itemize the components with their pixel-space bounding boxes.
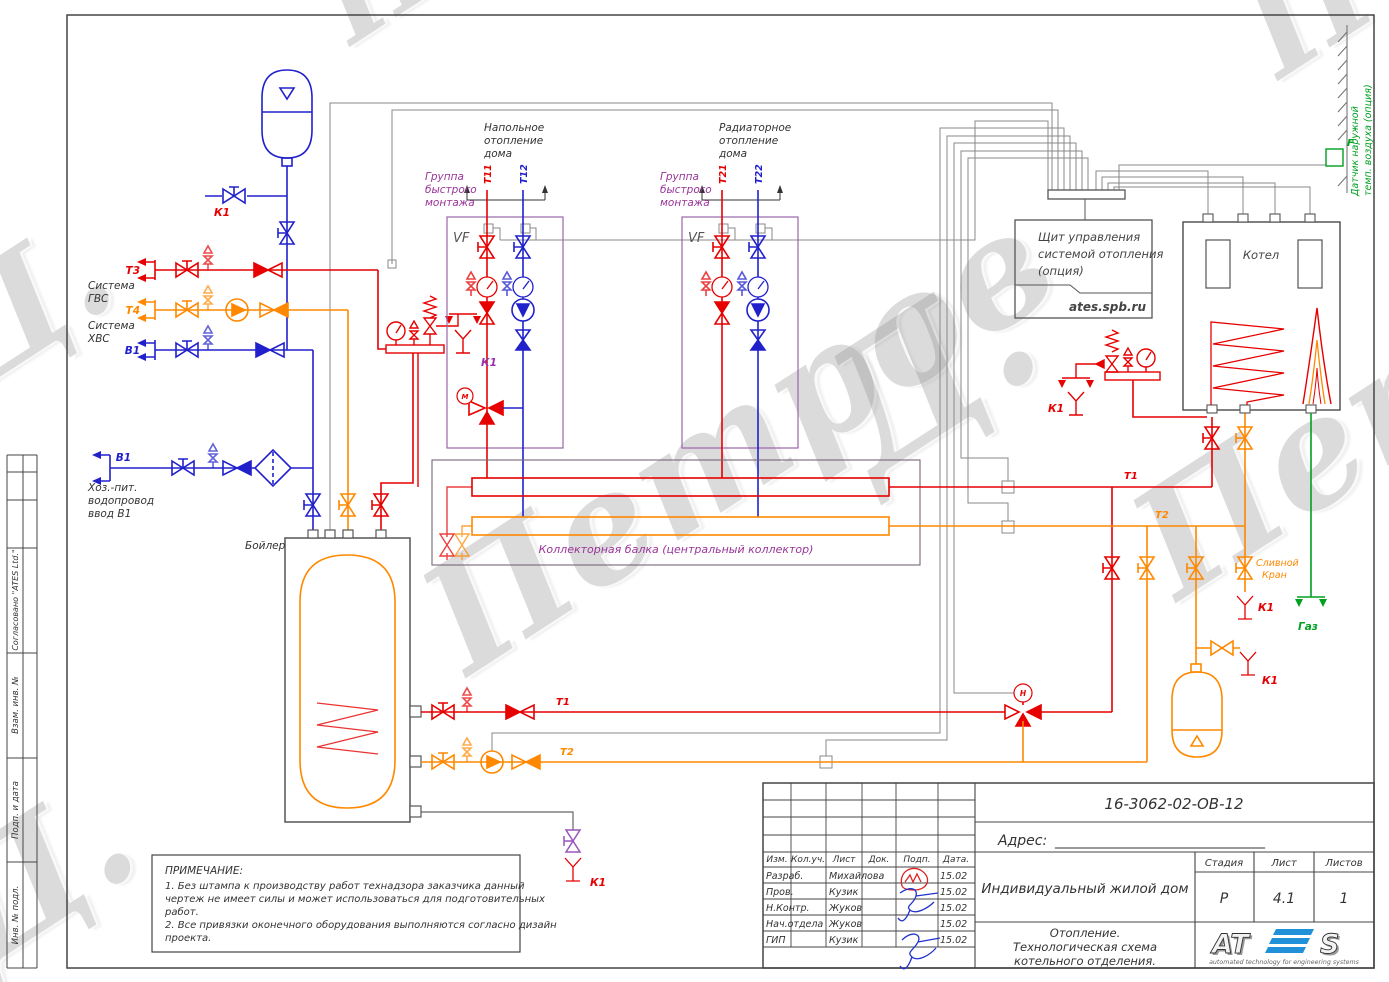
logo-letters-right: S [1320, 929, 1339, 960]
label-grp1: Группа [660, 171, 699, 183]
label-panel1: Щит управления [1038, 230, 1140, 244]
valve-icon [749, 236, 765, 258]
col-izm: Изм. [766, 855, 787, 865]
address-label: Адрес: [997, 833, 1047, 849]
motor-letter: Н [1020, 689, 1027, 698]
valve-icon [172, 459, 194, 475]
valve-icon [1138, 557, 1154, 579]
subtitle3: котельного отделения. [1014, 954, 1156, 968]
valve-icon [713, 236, 729, 258]
air-vent-icon [463, 688, 471, 712]
valve-icon [514, 236, 530, 258]
drain-valve-icon [440, 534, 454, 556]
valve-icon [176, 301, 198, 317]
label-floor2: отопление [484, 135, 543, 147]
row-date: 15.02 [940, 887, 967, 898]
notes-line: чертеж не имеет силы и может использоват… [165, 894, 545, 905]
valve-icon [1203, 427, 1219, 449]
notes-line: 1. Без штампа к производству работ техна… [165, 880, 525, 892]
safety-valve-icon [1106, 330, 1118, 352]
label-k1: К1 [1048, 403, 1064, 415]
sheet-value: 4.1 [1273, 891, 1295, 907]
ates-logo: AT AT S S automated technology for engin… [1209, 929, 1360, 966]
control-wires [330, 103, 1326, 768]
drain-funnel-icon [1237, 596, 1253, 619]
label-rad1: Радиаторное [719, 122, 791, 134]
row-role: Н.Контр. [766, 903, 810, 914]
thermo-gauge-icon [477, 277, 497, 297]
label-t11: Т11 [483, 164, 494, 184]
stage-value: Р [1220, 891, 1229, 907]
label-k1: К1 [590, 877, 606, 889]
label-grp2: быстрого [660, 184, 712, 196]
label-boiler: Бойлер [245, 540, 286, 552]
project-name: Индивидуальный жилой дом [981, 881, 1188, 897]
valve-icon [339, 494, 355, 516]
valve-icon [223, 187, 245, 203]
heat-exchanger-icon [1211, 322, 1284, 405]
air-vent-icon [410, 321, 418, 345]
flame-icon [1303, 308, 1331, 404]
valve-icon [176, 341, 198, 357]
thermo-gauge-icon [748, 277, 768, 297]
valve-icon [432, 703, 454, 719]
label-collector: Коллекторная балка (центральный коллекто… [539, 543, 814, 556]
strip-vzam: Взам. инв. № [11, 676, 21, 734]
air-vent-icon [204, 326, 212, 350]
strip-approved: Согласовано "ATES Ltd." [11, 549, 20, 650]
motor-letter: М [462, 393, 469, 401]
label-floor3: дома [483, 148, 512, 160]
label-intro1: Хоз.-пит. [87, 482, 137, 494]
label-t1: Т1 [1124, 471, 1138, 482]
boiler-drain-line [421, 812, 581, 881]
label-t1: Т1 [556, 697, 570, 708]
strip-inv: Инв. № подл. [11, 886, 21, 945]
pressure-gauge-icon [1137, 349, 1155, 372]
safety-valve-icon [424, 296, 436, 318]
label-b1: В1 [125, 345, 140, 357]
label-k1: К1 [1262, 675, 1278, 687]
air-vent-icon [702, 272, 710, 296]
notes-line: работ. [164, 906, 199, 918]
valve-icon [1103, 557, 1119, 579]
address-line: ______________________________ [1054, 833, 1266, 849]
label-t2: Т2 [1155, 510, 1169, 521]
label-panel2: системой отопления [1038, 247, 1163, 261]
label-t21: Т21 [718, 164, 729, 184]
label-rad2: отопление [719, 135, 778, 147]
sheet-label: Лист [1270, 858, 1298, 869]
col-koluch: Кол.уч. [791, 855, 825, 865]
air-vent-icon [503, 272, 511, 296]
col-data: Дата. [942, 855, 969, 865]
label-sys-hvs2: ХВС [87, 333, 110, 345]
return-collector-bar [472, 517, 889, 535]
drain-funnels-right [1237, 596, 1256, 675]
col-dok: Док. [868, 855, 890, 865]
row-role: Разраб. [766, 871, 803, 882]
stage-label: Стадия [1205, 858, 1243, 869]
return-line-t2 [421, 410, 1252, 773]
air-vent-icon [463, 738, 471, 762]
valve-icon [304, 494, 320, 516]
gas-line [1295, 413, 1327, 607]
boiler-tank [285, 530, 421, 822]
terminal-bar [1048, 190, 1125, 199]
label-b1-intro: В1 [116, 452, 131, 464]
col-list: Лист [832, 855, 857, 865]
valve-icon [478, 236, 494, 258]
drain-funnel-icon [1068, 392, 1084, 415]
sensor-icon [1326, 149, 1343, 166]
air-vent-icon [467, 272, 475, 296]
valve-icon [1187, 557, 1203, 579]
expansion-vessel-icon [262, 70, 312, 158]
logo-letters-left: AT [1210, 929, 1251, 960]
notes-title: ПРИМЕЧАНИЕ: [165, 865, 243, 877]
drain-funnel-icon [455, 330, 471, 353]
label-gas: Газ [1298, 621, 1318, 633]
air-vent-icon [209, 444, 217, 468]
label-floor1: Напольное [484, 122, 544, 134]
dhw-t3-line [137, 246, 413, 530]
row-date: 15.02 [940, 903, 967, 914]
row-date: 15.02 [940, 871, 967, 882]
air-vent-icon [1124, 348, 1132, 372]
valve-icon [1236, 427, 1252, 449]
label-drain2: Кран [1262, 570, 1287, 581]
row-name: Кузик [829, 935, 859, 946]
label-vf: VF [688, 231, 705, 246]
label-panel3: (опция) [1038, 264, 1084, 278]
notes-line: 2. Все привязки оконечного оборудования … [165, 919, 557, 931]
signature-blue [900, 934, 940, 969]
label-t3: Т3 [126, 265, 140, 277]
air-vent-icon [738, 272, 746, 296]
drain-valve-icon [455, 534, 469, 556]
label-k1: К1 [1258, 602, 1274, 614]
drain-valve-icon [1236, 557, 1252, 579]
frame-side-strip: Согласовано "ATES Ltd." Взам. инв. № Под… [7, 455, 37, 968]
valve-icon [176, 261, 198, 277]
signatures [898, 868, 940, 968]
label-t22: Т22 [754, 164, 765, 184]
row-name: Кузик [829, 887, 859, 898]
label-rad3: дома [718, 148, 747, 160]
logo-tagline: automated technology for engineering sys… [1209, 958, 1360, 966]
drain-funnel-icon [565, 858, 581, 881]
label-vf: VF [453, 231, 470, 246]
label-sys-gvs: Система [88, 280, 135, 292]
logo-blue-bars [1265, 929, 1314, 953]
wall-hatch [1338, 25, 1347, 193]
strip-podp: Подп. и дата [11, 781, 21, 839]
label-sensor1: Датчик наружной [1350, 106, 1361, 197]
label-kotel: Котел [1243, 248, 1280, 262]
expansion-vessel-icon [1172, 672, 1222, 757]
heat-coil-icon [317, 703, 378, 754]
pressure-gauge-icon [387, 322, 405, 345]
drawing-sheet: Петров Петров Д. Петров Петров Д. Д. Сог… [0, 0, 1389, 982]
air-vent-icon [204, 286, 212, 310]
label-sys-hvs: Система [88, 320, 135, 332]
row-role: Пров. [766, 887, 794, 898]
sheets-value: 1 [1340, 891, 1349, 907]
drain-valve-icon [564, 830, 580, 852]
label-t2: Т2 [560, 747, 574, 758]
label-k1: К1 [481, 357, 497, 369]
drain-funnel-icon [1240, 652, 1256, 675]
valve-icon [278, 222, 294, 244]
label-intro2: водопровод [88, 495, 154, 507]
row-role: Нач.отдела [766, 919, 823, 930]
label-t12: Т12 [519, 164, 530, 184]
row-date: 15.02 [940, 919, 967, 930]
label-grp3: монтажа [660, 197, 710, 209]
valve-icon [372, 494, 388, 516]
label-intro3: ввод В1 [88, 508, 131, 520]
row-name: Жуков [828, 919, 862, 930]
label-t4: Т4 [126, 305, 140, 317]
label-sensor2: темп. воздуха (опция) [1363, 84, 1374, 196]
label-grp1: Группа [425, 171, 464, 183]
valve-icon [1211, 641, 1233, 655]
signature-red [901, 868, 927, 890]
air-vent-icon [204, 246, 212, 270]
valve-icon [432, 753, 454, 769]
label-k1: К1 [214, 207, 230, 219]
subtitle2: Технологическая схема [1013, 940, 1157, 954]
sheets-label: Листов [1324, 858, 1362, 869]
signature-blue [898, 889, 938, 921]
subtitle1: Отопление. [1050, 926, 1120, 940]
row-role: ГИП [766, 935, 786, 946]
col-podp: Подп. [903, 855, 930, 865]
safety-group-right [1058, 330, 1160, 415]
notes-line: проекта. [165, 933, 211, 944]
supply-collector-bar [472, 478, 889, 496]
label-drain1: Сливной [1256, 558, 1299, 569]
label-sys-gvs2: ГВС [88, 293, 109, 305]
thermo-gauge-icon [712, 277, 732, 297]
label-grp3: монтажа [425, 197, 475, 209]
gas-boiler [1183, 214, 1340, 413]
row-name: Михайлова [829, 871, 884, 882]
outdoor-sensor [1326, 25, 1347, 193]
row-date: 15.02 [940, 935, 967, 946]
label-grp2: быстрого [425, 184, 477, 196]
doc-number: 16-3062-02-ОВ-12 [1104, 795, 1243, 813]
thermo-gauge-icon [513, 277, 533, 297]
dhw-t4-line [137, 286, 355, 530]
row-name: Жуков [828, 903, 862, 914]
label-panel-url: ates.spb.ru [1069, 300, 1146, 314]
